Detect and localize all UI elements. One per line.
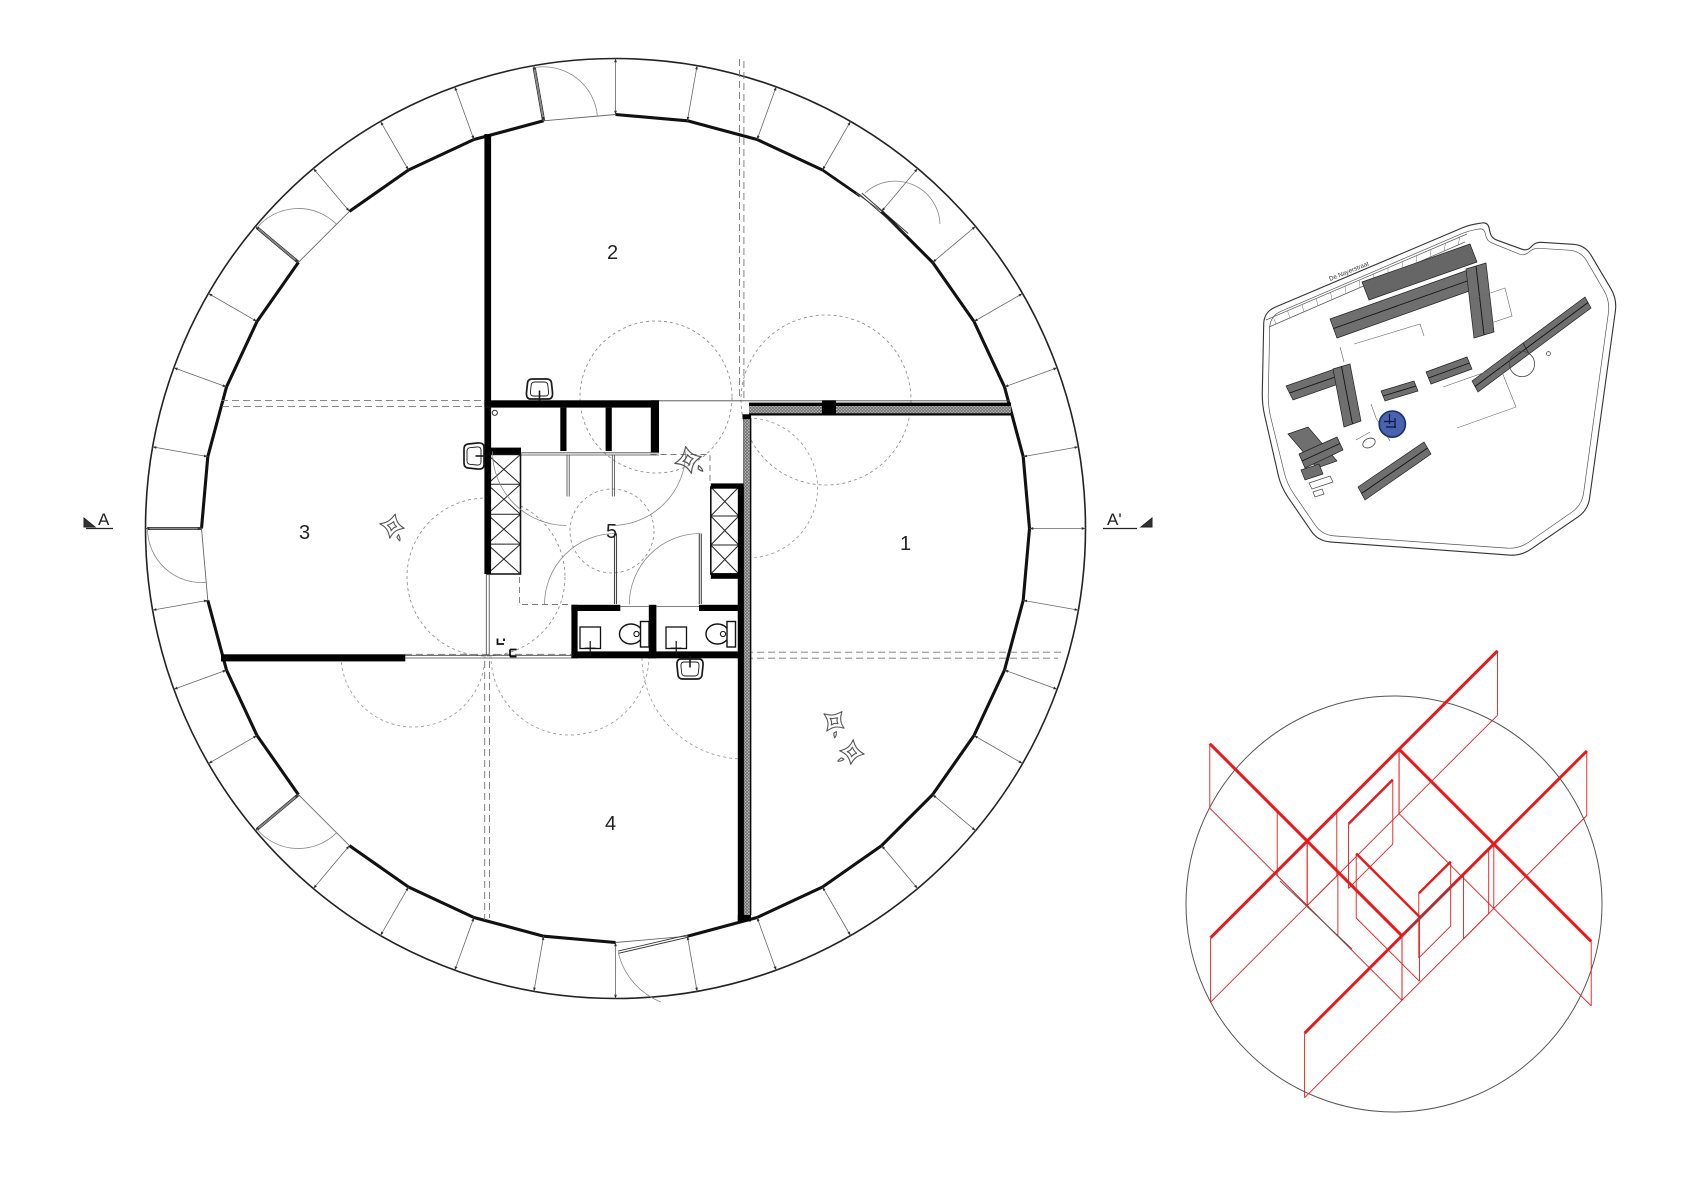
svg-text:3: 3 bbox=[299, 522, 310, 544]
svg-text:5: 5 bbox=[606, 521, 617, 543]
svg-text:2: 2 bbox=[607, 242, 618, 264]
svg-text:A: A bbox=[98, 510, 110, 529]
svg-text:1: 1 bbox=[900, 533, 911, 555]
svg-text:A': A' bbox=[1107, 510, 1122, 529]
svg-text:4: 4 bbox=[605, 813, 616, 835]
